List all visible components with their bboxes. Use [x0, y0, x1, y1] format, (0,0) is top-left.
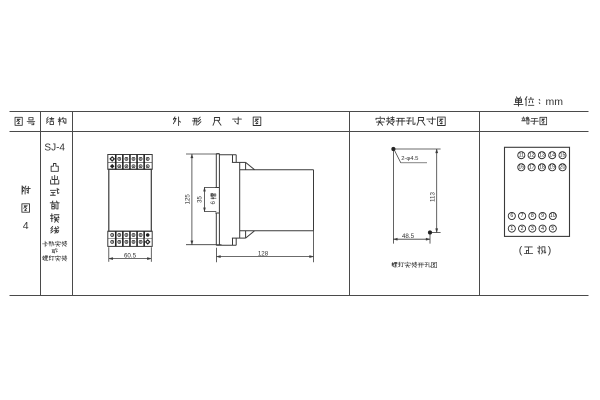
- svg-text:8: 8: [531, 213, 534, 219]
- svg-text:mm: mm: [546, 96, 564, 108]
- svg-text:3: 3: [531, 226, 534, 232]
- svg-text:9: 9: [541, 213, 544, 219]
- svg-text:5: 5: [551, 226, 554, 232]
- svg-text:17: 17: [529, 165, 535, 171]
- svg-text:6: 6: [510, 213, 513, 219]
- svg-text:6: 6: [210, 201, 217, 205]
- svg-text:35: 35: [198, 196, 204, 203]
- svg-text:20: 20: [560, 165, 566, 171]
- svg-text:15: 15: [560, 152, 566, 158]
- svg-text:): ): [548, 245, 552, 257]
- svg-text:18: 18: [539, 165, 545, 171]
- svg-text:10: 10: [550, 213, 556, 219]
- svg-text:SJ-4: SJ-4: [44, 143, 65, 154]
- svg-text:113: 113: [430, 192, 437, 202]
- svg-text:2-φ4.5: 2-φ4.5: [401, 156, 419, 162]
- svg-text:125: 125: [185, 194, 192, 205]
- svg-text:128: 128: [258, 250, 269, 257]
- svg-text:7: 7: [521, 213, 524, 219]
- svg-text:(: (: [519, 245, 523, 257]
- svg-text:2: 2: [521, 226, 524, 232]
- svg-text:4: 4: [23, 220, 29, 232]
- svg-text:4: 4: [541, 226, 544, 232]
- svg-text:11: 11: [519, 152, 524, 158]
- svg-text:14: 14: [549, 152, 555, 158]
- svg-text:60.5: 60.5: [124, 253, 137, 260]
- svg-text:16: 16: [518, 165, 524, 171]
- svg-text:48.5: 48.5: [402, 233, 415, 240]
- svg-text:1: 1: [510, 226, 513, 232]
- svg-text:13: 13: [539, 152, 545, 158]
- svg-text:12: 12: [529, 152, 535, 158]
- svg-text:19: 19: [549, 165, 555, 171]
